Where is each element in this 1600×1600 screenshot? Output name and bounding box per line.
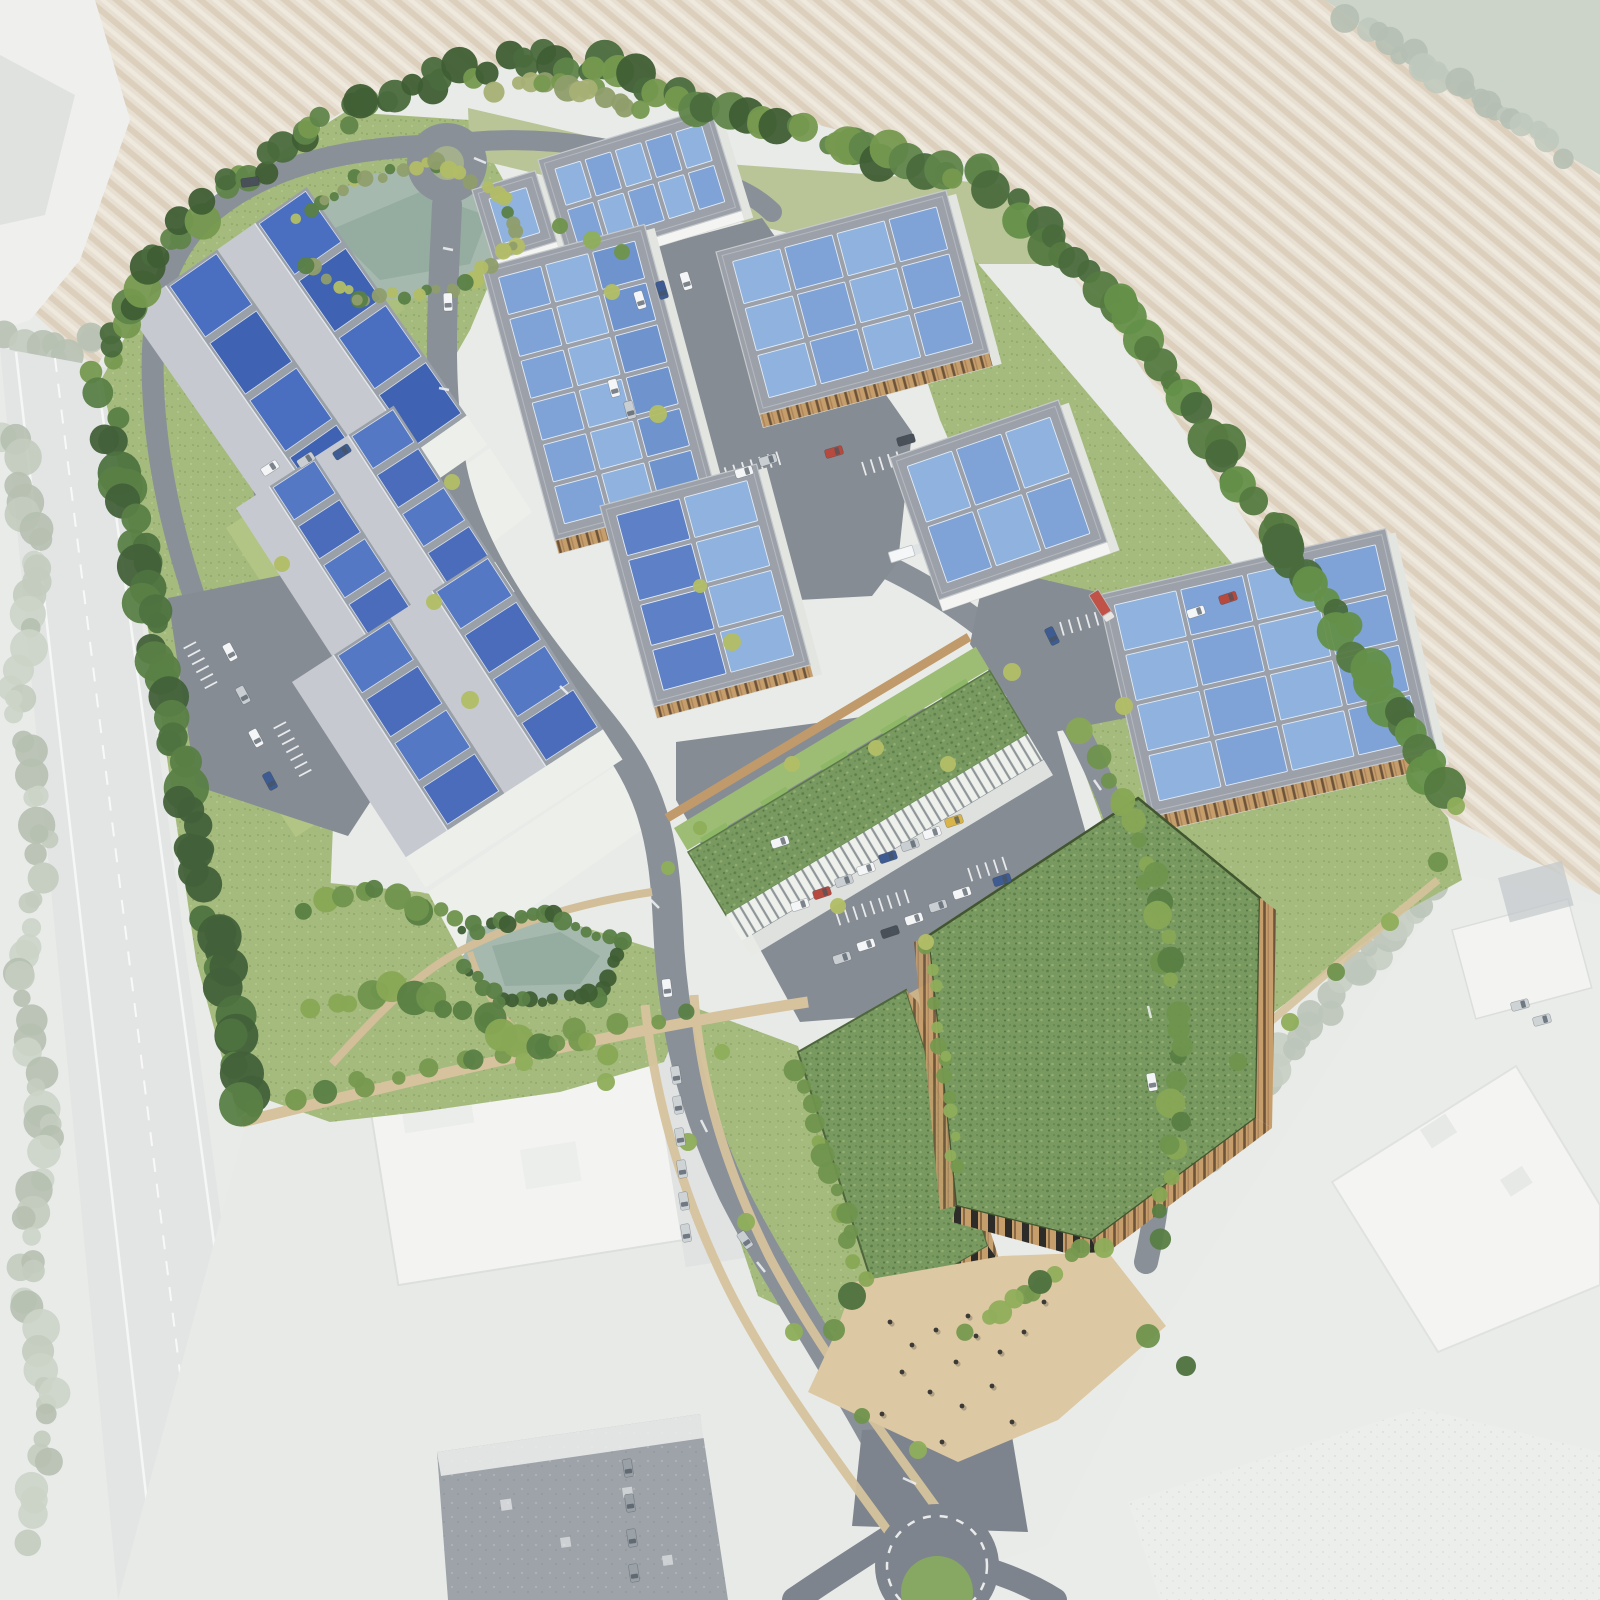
pond-north-reeds [387, 287, 399, 299]
pond-north-reeds [385, 164, 395, 174]
context-trees-west [5, 961, 35, 991]
parking-trees [274, 556, 290, 572]
park-trees [295, 903, 312, 920]
trees-boundary-south [245, 1099, 263, 1117]
parking-trees [723, 633, 741, 651]
pond-north-reeds [319, 195, 329, 205]
car-glass [444, 303, 451, 308]
pond-south-bushes [547, 993, 558, 1004]
shrubs-wing-west [797, 1079, 811, 1093]
parking-trees [693, 821, 707, 835]
trees-boundary-south [606, 1013, 628, 1035]
context-trees-west [24, 843, 46, 865]
context-shed-rooflight [500, 1498, 512, 1510]
pond-north-reeds [497, 191, 512, 206]
trees-road-east [1143, 901, 1172, 930]
pond-north-reeds [357, 170, 373, 186]
hedge-north [310, 107, 330, 127]
scrub-northeast [483, 82, 504, 103]
trees-road-east [1162, 929, 1177, 944]
parking-trees [1447, 797, 1465, 815]
plaza-trees [1028, 1270, 1052, 1294]
parking-trees [1229, 1053, 1247, 1071]
plaza-trees [1176, 1356, 1196, 1376]
trees-road-east [1066, 717, 1093, 744]
pond-north-reeds [508, 224, 523, 239]
hedge-north [215, 168, 237, 190]
pond-south-bushes [469, 924, 485, 940]
trees-road-east [1163, 972, 1178, 987]
shrubs-wing-west [858, 1271, 874, 1287]
car-glass [664, 989, 672, 994]
parking-trees [1428, 852, 1448, 872]
plaza-trees [1094, 1238, 1114, 1258]
pond-north-reeds [333, 281, 346, 294]
park-trees [404, 896, 429, 921]
pond-north-reeds [337, 185, 349, 197]
person [1042, 1300, 1047, 1305]
trees-road-east [1166, 1070, 1187, 1091]
parking-trees [940, 756, 956, 772]
pond-north-reeds [397, 163, 411, 177]
pond-south-bushes [538, 998, 548, 1008]
parking-trees [714, 1044, 730, 1060]
pond-north-reeds [372, 288, 387, 303]
park-trees [365, 880, 383, 898]
trees-road-east [1101, 773, 1117, 789]
parking-trees [461, 691, 479, 709]
context-trees-west [27, 1135, 61, 1169]
pond-south-bushes [592, 932, 601, 941]
parking-trees [444, 474, 460, 490]
person [940, 1440, 945, 1445]
shrubs-main-west [943, 1104, 957, 1118]
parking-trees [868, 740, 884, 756]
shrubs-main-west [945, 1150, 957, 1162]
hedge-north [340, 116, 358, 134]
context-shed-rooflight [662, 1555, 673, 1566]
shrubs-main-west [943, 1091, 956, 1104]
shrubs-wing-west [831, 1184, 843, 1196]
person [934, 1328, 939, 1333]
parking-trees [649, 405, 667, 423]
person [900, 1370, 905, 1375]
site-plan-svg [0, 0, 1600, 1600]
person [974, 1334, 979, 1339]
context-trees-west [13, 990, 30, 1007]
hedge-north [343, 84, 377, 118]
pond-north-reeds [330, 192, 339, 201]
plaza-trees [823, 1319, 845, 1341]
hedge-north [147, 246, 169, 268]
park-trees [434, 902, 448, 916]
shrubs-wing-west [805, 1113, 825, 1133]
context-trees-west [12, 1206, 36, 1230]
person [966, 1314, 971, 1319]
plaza-trees [838, 1282, 866, 1310]
shrubs-main-west [940, 1051, 951, 1062]
context-trees-west [4, 438, 41, 475]
courtyard-trees [614, 244, 630, 260]
shrubs-plaza-south [1065, 1248, 1079, 1262]
pond-south-bushes [472, 971, 483, 982]
scrub-northeast [533, 75, 550, 92]
hedge-north [789, 113, 818, 142]
shrubs-main-west [951, 1132, 961, 1142]
pond-south-bushes [553, 912, 572, 931]
shrubs-main-west [930, 979, 943, 992]
parking-trees [1115, 697, 1133, 715]
park-trees [332, 886, 354, 908]
parking-trees [604, 284, 620, 300]
pond-south-bushes [515, 910, 529, 924]
shrubs-main-west [931, 1022, 943, 1034]
courtyard-trees [552, 218, 568, 234]
pond-south-bushes [564, 989, 576, 1001]
context-trees-west [35, 1448, 63, 1476]
park-trees [447, 910, 463, 926]
pond-north-reeds [398, 292, 411, 305]
trees-road-east [1152, 1204, 1167, 1219]
parking-trees [785, 1323, 803, 1341]
shrubs-main-west [927, 997, 940, 1010]
park-trees [340, 995, 357, 1012]
trees-boundary-south [678, 1004, 694, 1020]
person [960, 1404, 965, 1409]
parking-trees [737, 1213, 755, 1231]
context-trees-west [4, 704, 23, 723]
shrubs-wing-west [845, 1254, 860, 1269]
treeline-west [98, 426, 128, 456]
treeline-east [1239, 487, 1268, 516]
parking-trees [597, 1073, 615, 1091]
parking-trees [693, 579, 707, 593]
plaza-trees [1136, 1324, 1160, 1348]
trees-road-east [1144, 862, 1169, 887]
park-trees [578, 1033, 596, 1051]
context-trees-west [28, 862, 59, 893]
treeline-west [215, 1019, 248, 1052]
park-trees [453, 1001, 472, 1020]
shrubs-plaza-south [956, 1324, 973, 1341]
shrubs-wing-west [836, 1202, 857, 1223]
person [998, 1350, 1003, 1355]
trees-boundary-south [419, 1058, 438, 1077]
shrubs-wing-west [818, 1162, 840, 1184]
trees-road-east [1087, 745, 1112, 770]
trees-boundary-south [285, 1089, 307, 1111]
pond-north-reeds [297, 257, 314, 274]
pond-south-bushes [607, 955, 620, 968]
person [928, 1390, 933, 1395]
parking-trees [1281, 1013, 1299, 1031]
hedge-north [188, 188, 215, 215]
parking-trees [1003, 663, 1021, 681]
pond-south-bushes [499, 915, 517, 933]
trees-road-east [1121, 808, 1146, 833]
pond-north-reeds [463, 174, 478, 189]
treeline-east [1336, 612, 1362, 638]
person [990, 1384, 995, 1389]
trees-boundary-south [651, 1015, 666, 1030]
trees-road-east [1152, 1187, 1168, 1203]
parking-trees [784, 756, 800, 772]
context-hedge-top-right [1330, 4, 1359, 33]
treeline-east [971, 170, 1010, 209]
context-trees-west [23, 788, 43, 808]
person [1010, 1420, 1015, 1425]
trees-boundary-south [463, 1049, 483, 1069]
pond-north-reeds [352, 295, 363, 306]
context-trees-west [29, 528, 52, 551]
person [910, 1343, 915, 1348]
pond-north-reeds [495, 243, 512, 260]
context-hedge-top-right [1534, 128, 1559, 153]
pond-south-bushes [574, 988, 590, 1004]
context-trees-west [18, 1499, 47, 1528]
trees-road-east [1159, 1135, 1179, 1155]
shrubs-main-west [936, 1068, 952, 1084]
scrub-northeast [577, 79, 597, 99]
context-trees-west [30, 824, 48, 842]
shrubs-wing-west [784, 1059, 806, 1081]
park-trees [549, 1035, 566, 1052]
parked-cars [661, 979, 672, 998]
person [880, 1412, 885, 1417]
treeline-west [82, 377, 113, 408]
shrubs-wing-west [838, 1231, 856, 1249]
pond-north-reeds [413, 288, 425, 300]
shrubs-wing-west [803, 1094, 822, 1113]
trees-boundary-south [313, 1080, 337, 1104]
pond-north-reeds [431, 285, 440, 294]
person [888, 1320, 893, 1325]
pond-south-bushes [457, 926, 466, 935]
trees-road-east [1150, 1228, 1171, 1249]
context-trees-west [19, 892, 40, 913]
treeline-west [121, 503, 151, 533]
context-trees-west [15, 1530, 42, 1557]
pond-south-bushes [571, 922, 580, 931]
car-body [443, 293, 453, 311]
parking-trees [830, 898, 846, 914]
park-trees [434, 1000, 452, 1018]
trees-road-east [1157, 947, 1184, 974]
treeline-west [107, 407, 129, 429]
pond-south-bushes [456, 959, 471, 974]
context-trees-west [22, 1260, 45, 1283]
shrubs-main-west [927, 964, 939, 976]
aerial-masterplan-render [0, 0, 1600, 1600]
pond-south-bushes [614, 932, 632, 950]
hedge-north [942, 168, 962, 188]
treeline-west [185, 866, 222, 903]
parked-cars [443, 293, 453, 311]
trees-boundary-south [392, 1071, 405, 1084]
parking-trees [1381, 913, 1399, 931]
pond-south-bushes [581, 926, 592, 937]
shrubs-main-west [950, 1159, 964, 1173]
trees-road-east [1171, 1112, 1191, 1132]
parking-trees [515, 1053, 533, 1071]
context-shed-rooflight [560, 1537, 571, 1548]
pond-north-reeds [321, 274, 332, 285]
context-trees-west [36, 1404, 57, 1425]
plaza-trees [854, 1408, 870, 1424]
context-trees-west [22, 918, 41, 937]
hedge-north [582, 57, 605, 80]
shrubs-plaza-south [982, 1310, 997, 1325]
trees-road-east [1131, 832, 1147, 848]
plaza-trees [909, 1441, 927, 1459]
parking-trees [918, 934, 934, 950]
pond-north-reeds [378, 173, 388, 183]
hedge-north [475, 62, 498, 85]
trees-road-east [1164, 1169, 1180, 1185]
scrub-northeast [631, 100, 650, 119]
parking-trees [661, 861, 675, 875]
car-body [661, 979, 672, 998]
parking-trees [426, 594, 442, 610]
treeline-west [147, 612, 168, 633]
pond-north-reeds [291, 214, 302, 225]
trees-boundary-south [355, 1077, 375, 1097]
park-trees [597, 1044, 618, 1065]
park-trees [300, 999, 320, 1019]
courtyard-trees [583, 231, 601, 249]
trees-road-east [1172, 1036, 1193, 1057]
parking-trees [1327, 963, 1345, 981]
person [1022, 1330, 1027, 1335]
context-hedge-top-right [1553, 149, 1574, 170]
context-trees-west [22, 1227, 41, 1246]
person [954, 1360, 959, 1365]
